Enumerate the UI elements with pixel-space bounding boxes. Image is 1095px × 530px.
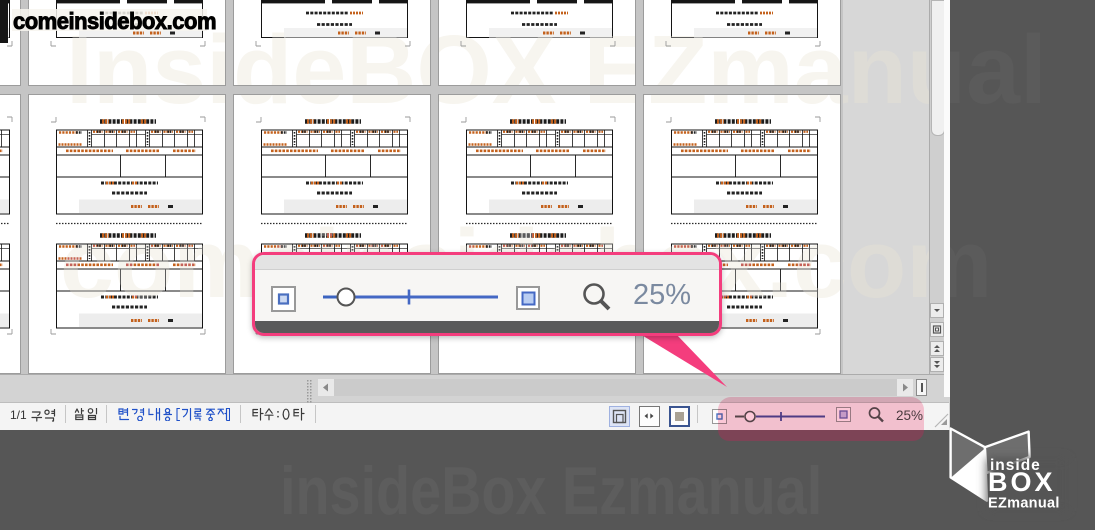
svg-text:BOX: BOX [988,467,1056,497]
svg-text:EZmanual: EZmanual [988,496,1060,512]
